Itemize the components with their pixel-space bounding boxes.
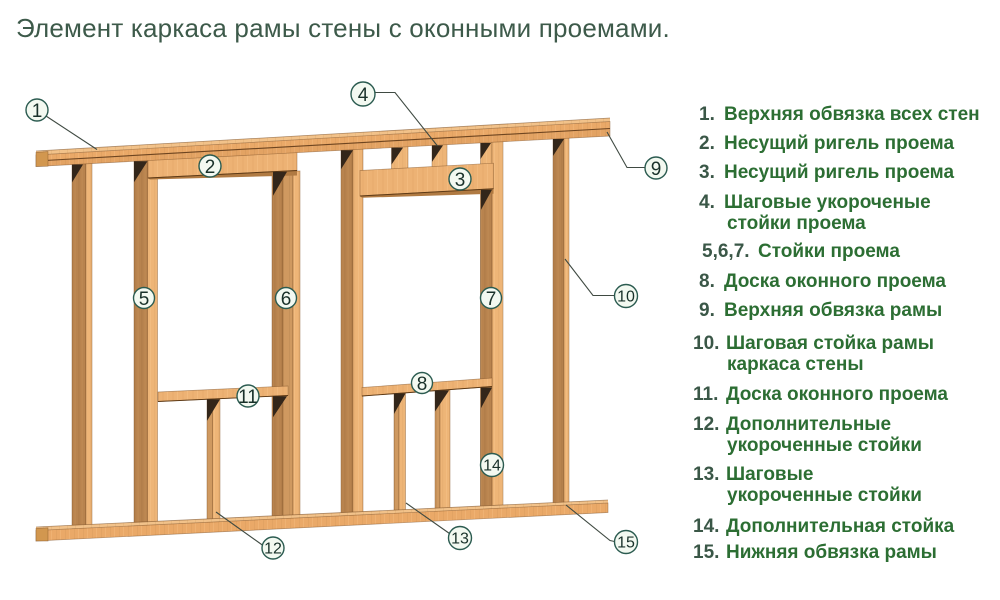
svg-text:7: 7 [486, 289, 497, 310]
svg-text:2: 2 [205, 157, 216, 178]
svg-text:8: 8 [417, 374, 428, 395]
svg-text:3: 3 [455, 170, 466, 191]
svg-text:10: 10 [617, 289, 635, 306]
svg-text:15: 15 [617, 535, 635, 552]
svg-text:4: 4 [358, 85, 369, 106]
svg-text:11: 11 [238, 387, 258, 408]
svg-text:5: 5 [139, 289, 150, 310]
svg-text:13: 13 [451, 531, 469, 548]
svg-text:12: 12 [264, 541, 282, 558]
svg-text:9: 9 [651, 159, 662, 180]
svg-text:1: 1 [32, 101, 43, 122]
svg-text:6: 6 [281, 289, 292, 310]
svg-text:14: 14 [483, 458, 501, 475]
